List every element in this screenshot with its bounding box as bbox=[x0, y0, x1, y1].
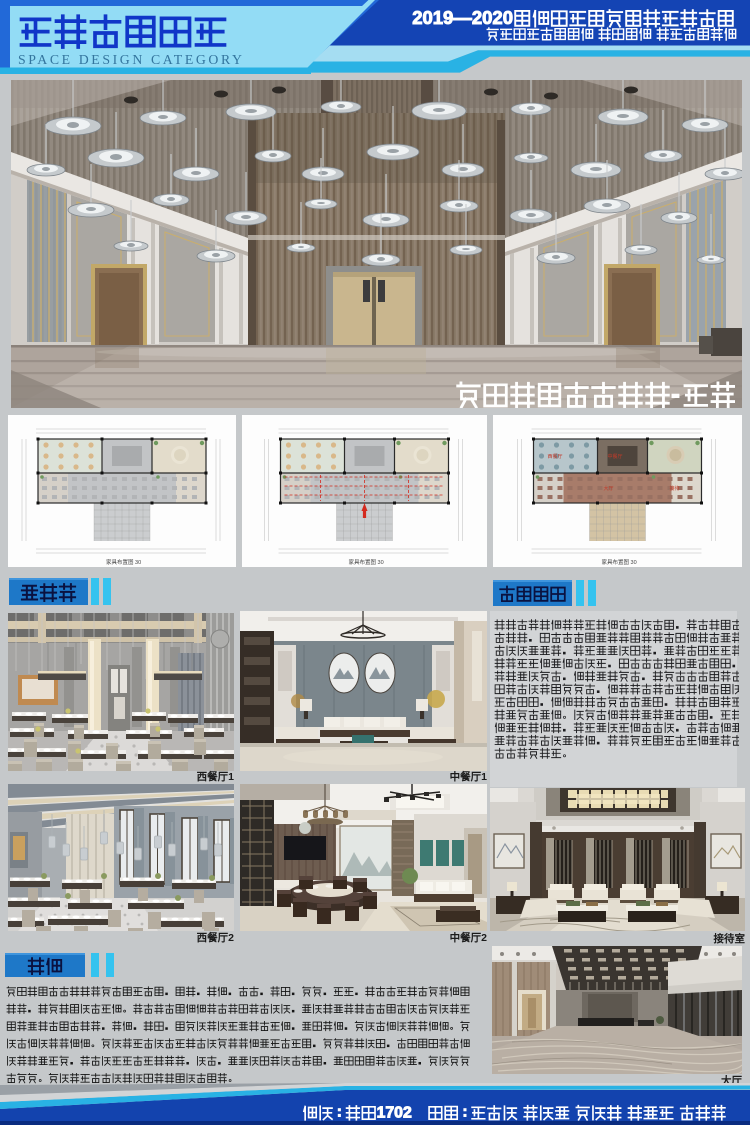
svg-text:-: - bbox=[671, 379, 680, 408]
svg-text:SPACE DESIGN CATEGORY: SPACE DESIGN CATEGORY bbox=[18, 52, 245, 67]
svg-text:中餐厅: 中餐厅 bbox=[608, 453, 623, 460]
svg-text:家具布置图 30: 家具布置图 30 bbox=[602, 558, 637, 566]
svg-text:西餐厅: 西餐厅 bbox=[548, 453, 563, 460]
svg-text:家具布置图 30: 家具布置图 30 bbox=[106, 558, 141, 566]
svg-text:接待: 接待 bbox=[670, 485, 680, 492]
svg-text:大厅: 大厅 bbox=[604, 485, 614, 492]
svg-text:家具布置图 30: 家具布置图 30 bbox=[349, 558, 384, 566]
svg-text:2019—2020: 2019—2020 bbox=[412, 7, 513, 28]
svg-text:1702: 1702 bbox=[377, 1105, 412, 1122]
